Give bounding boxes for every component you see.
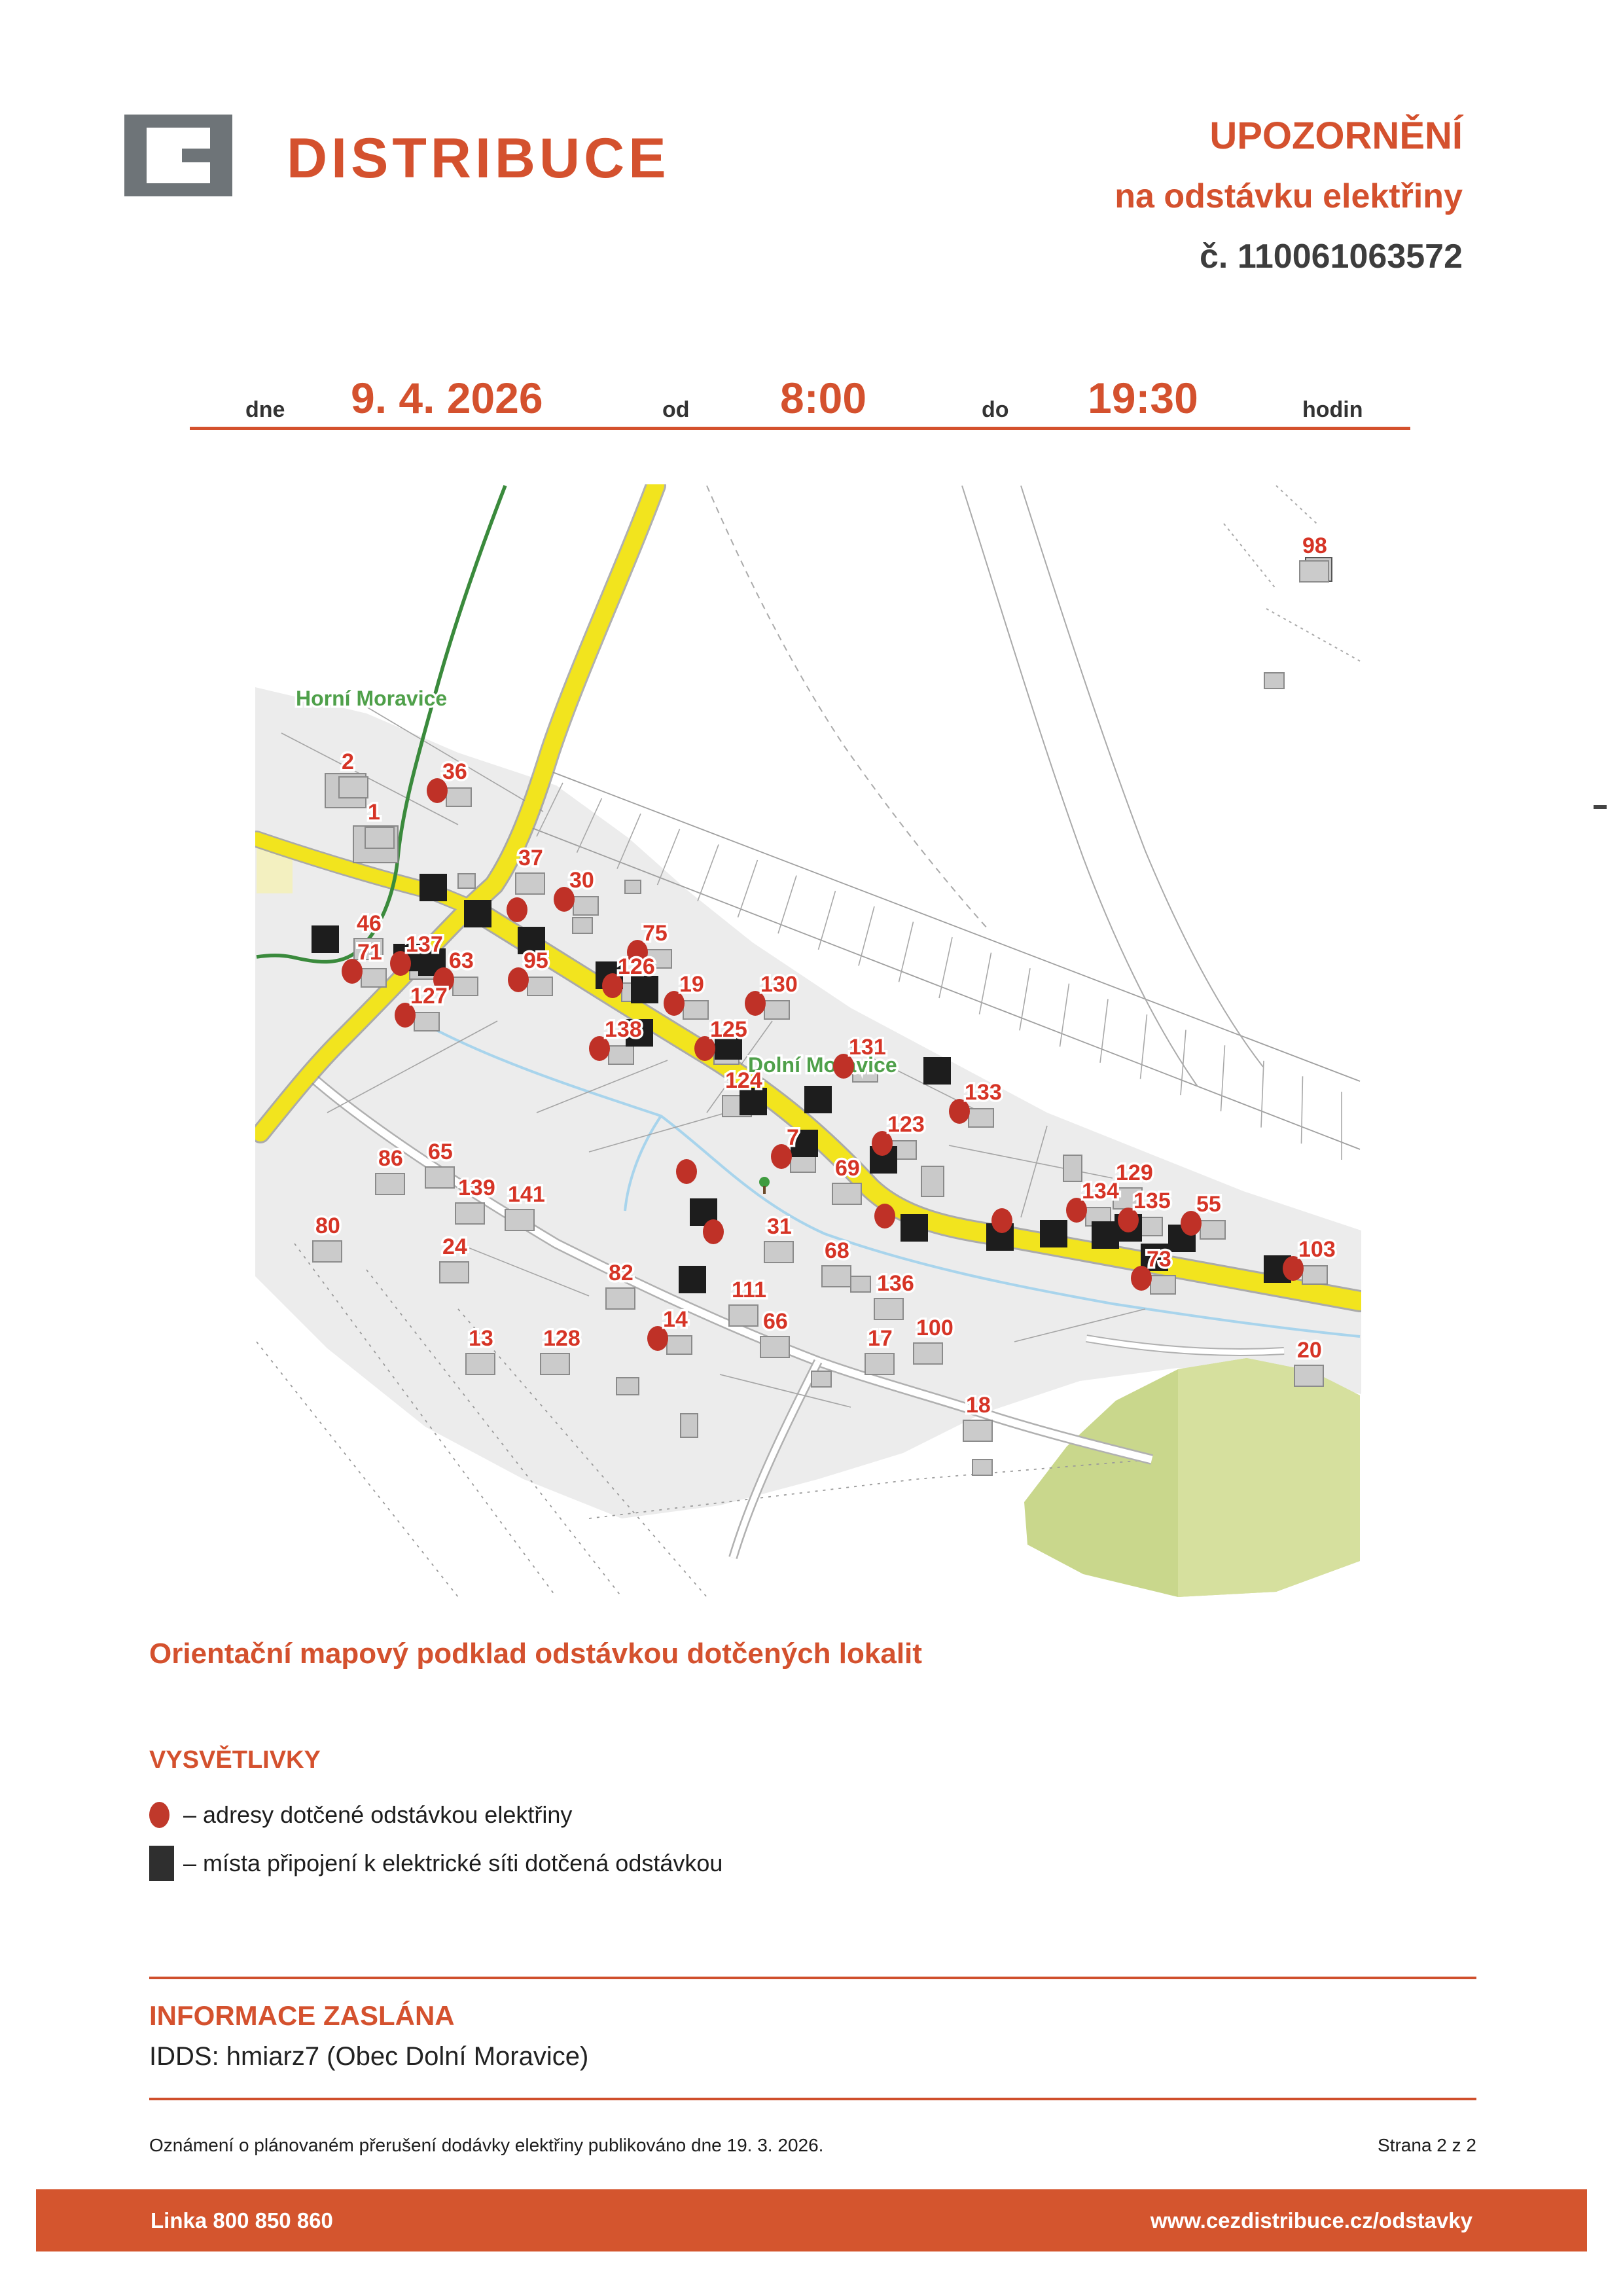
address-number-111: 111 bbox=[732, 1278, 766, 1302]
to-value: 19:30 bbox=[1088, 373, 1198, 423]
address-number-14: 14 bbox=[663, 1307, 688, 1332]
house bbox=[440, 1262, 469, 1283]
hatch-line bbox=[698, 844, 719, 901]
address-number-17: 17 bbox=[868, 1326, 893, 1351]
address-number-135: 135 bbox=[1133, 1189, 1171, 1213]
house bbox=[1200, 1221, 1225, 1239]
house bbox=[865, 1354, 894, 1374]
map-forest-light bbox=[1178, 1358, 1360, 1597]
connection-square bbox=[419, 874, 447, 901]
house bbox=[606, 1288, 635, 1309]
address-number-63: 63 bbox=[449, 948, 474, 973]
hatch-line bbox=[1221, 1045, 1225, 1111]
address-number-69: 69 bbox=[835, 1156, 860, 1181]
house bbox=[874, 1299, 903, 1319]
address-number-37: 37 bbox=[518, 846, 543, 870]
notice-title: UPOZORNĚNÍ bbox=[1115, 106, 1463, 166]
locality-label: Horní Moravice bbox=[296, 687, 447, 710]
scan-artifact bbox=[1594, 805, 1607, 809]
hatch-line bbox=[738, 860, 758, 918]
connection-square bbox=[631, 976, 658, 1003]
map-tree-trunk bbox=[763, 1186, 766, 1194]
red-dot-icon bbox=[149, 1802, 183, 1828]
house bbox=[729, 1305, 758, 1326]
hatch-line bbox=[1302, 1076, 1303, 1143]
outage-schedule: dne 9. 4. 2026 od 8:00 do 19:30 hodin bbox=[0, 361, 1623, 427]
connection-square bbox=[1040, 1220, 1067, 1247]
house bbox=[527, 977, 552, 996]
house bbox=[1302, 1266, 1327, 1284]
address-number-36: 36 bbox=[442, 759, 467, 784]
address-number-127: 127 bbox=[410, 984, 448, 1009]
house bbox=[822, 1266, 851, 1287]
connection-square bbox=[1092, 1221, 1119, 1249]
address-number-130: 130 bbox=[760, 972, 798, 997]
address-number-82: 82 bbox=[609, 1261, 633, 1285]
cez-logo-icon bbox=[124, 115, 232, 196]
notice-subtitle: na odstávku elektřiny bbox=[1115, 166, 1463, 226]
map-caption: Orientační mapový podklad odstávkou dotč… bbox=[149, 1638, 922, 1670]
hatch-line bbox=[778, 876, 796, 934]
house bbox=[609, 1046, 633, 1064]
contact-phone: Linka 800 850 860 bbox=[151, 2208, 333, 2233]
house bbox=[667, 1336, 692, 1354]
house bbox=[313, 1241, 342, 1262]
connection-square bbox=[923, 1057, 951, 1085]
address-number-103: 103 bbox=[1298, 1237, 1336, 1262]
house bbox=[764, 1001, 789, 1019]
address-number-71: 71 bbox=[357, 940, 382, 965]
address-number-30: 30 bbox=[569, 868, 594, 893]
connection-square bbox=[901, 1214, 928, 1242]
address-number-95: 95 bbox=[524, 948, 548, 973]
address-number-19: 19 bbox=[679, 972, 704, 997]
address-number-128: 128 bbox=[543, 1326, 580, 1351]
hatch-line bbox=[1100, 999, 1108, 1062]
house bbox=[963, 1420, 992, 1441]
notice-title-block: UPOZORNĚNÍ na odstávku elektřiny č. 1100… bbox=[1115, 106, 1463, 287]
legend-item-connections: – místa připojení k elektrické síti dotč… bbox=[149, 1843, 722, 1884]
address-number-126: 126 bbox=[618, 954, 655, 979]
address-number-1: 1 bbox=[368, 800, 380, 825]
house bbox=[541, 1354, 569, 1374]
house bbox=[683, 1001, 708, 1019]
address-dot bbox=[991, 1208, 1012, 1233]
hatch-line bbox=[859, 906, 874, 966]
house bbox=[914, 1343, 942, 1364]
house bbox=[453, 977, 478, 996]
address-number-46: 46 bbox=[357, 911, 382, 936]
address-dot bbox=[703, 1219, 724, 1244]
address-number-137: 137 bbox=[406, 932, 443, 957]
house bbox=[414, 1013, 439, 1031]
address-number-55: 55 bbox=[1196, 1192, 1221, 1217]
house bbox=[1300, 561, 1329, 582]
divider-rule bbox=[149, 1977, 1476, 1979]
to-label: do bbox=[982, 397, 1009, 423]
house bbox=[573, 897, 598, 915]
house bbox=[505, 1210, 534, 1230]
address-number-139: 139 bbox=[458, 1175, 495, 1200]
date-label: dne bbox=[245, 397, 285, 423]
house bbox=[365, 827, 394, 848]
from-label: od bbox=[662, 397, 690, 423]
date-value: 9. 4. 2026 bbox=[351, 373, 543, 423]
hatch-line bbox=[1141, 1014, 1147, 1079]
house bbox=[339, 777, 368, 798]
address-number-133: 133 bbox=[965, 1080, 1002, 1105]
footer-bar: Linka 800 850 860 www.cezdistribuce.cz/o… bbox=[36, 2189, 1587, 2251]
hatch-line bbox=[1060, 984, 1069, 1047]
house bbox=[361, 969, 386, 987]
house bbox=[516, 873, 544, 894]
unit-label: hodin bbox=[1302, 397, 1363, 423]
black-square-icon bbox=[149, 1846, 183, 1881]
address-dot bbox=[874, 1204, 895, 1229]
divider-rule bbox=[149, 2098, 1476, 2100]
from-value: 8:00 bbox=[780, 373, 866, 423]
house bbox=[1294, 1365, 1323, 1386]
address-number-13: 13 bbox=[469, 1326, 493, 1351]
address-number-75: 75 bbox=[643, 921, 668, 946]
address-number-125: 125 bbox=[710, 1017, 747, 1042]
address-number-129: 129 bbox=[1116, 1160, 1153, 1185]
address-number-7: 7 bbox=[787, 1125, 799, 1150]
address-number-31: 31 bbox=[767, 1214, 792, 1239]
house bbox=[425, 1167, 454, 1188]
address-number-2: 2 bbox=[342, 749, 354, 774]
page-number: Strana 2 z 2 bbox=[1378, 2135, 1476, 2156]
address-number-65: 65 bbox=[428, 1139, 453, 1164]
house bbox=[969, 1109, 993, 1127]
address-number-18: 18 bbox=[966, 1393, 991, 1418]
house bbox=[832, 1183, 861, 1204]
address-number-124: 124 bbox=[725, 1068, 762, 1093]
address-number-24: 24 bbox=[442, 1234, 467, 1259]
house bbox=[446, 788, 471, 806]
house bbox=[466, 1354, 495, 1374]
address-number-138: 138 bbox=[605, 1017, 642, 1042]
address-number-134: 134 bbox=[1082, 1179, 1119, 1204]
address-dot bbox=[507, 897, 527, 922]
connection-square bbox=[312, 925, 339, 953]
address-number-123: 123 bbox=[887, 1112, 925, 1137]
connection-square bbox=[464, 900, 491, 927]
address-number-98: 98 bbox=[1302, 533, 1327, 558]
hatch-line bbox=[1261, 1061, 1264, 1128]
address-number-66: 66 bbox=[763, 1309, 788, 1334]
address-number-80: 80 bbox=[315, 1213, 340, 1238]
address-number-100: 100 bbox=[916, 1316, 954, 1340]
map-canvas: Horní MoraviceDolní Moravice 98213746124… bbox=[255, 484, 1361, 1600]
connection-square bbox=[804, 1086, 832, 1113]
brand-wordmark: DISTRIBUCE bbox=[287, 119, 670, 198]
address-number-20: 20 bbox=[1297, 1338, 1322, 1363]
address-number-86: 86 bbox=[378, 1146, 403, 1171]
legend-title: VYSVĚTLIVKY bbox=[149, 1746, 321, 1774]
house bbox=[455, 1203, 484, 1224]
legend-item-addresses: – adresy dotčené odstávkou elektřiny bbox=[149, 1795, 572, 1835]
outage-map: Horní MoraviceDolní Moravice 98213746124… bbox=[255, 484, 1361, 1600]
document-page: DISTRIBUCE UPOZORNĚNÍ na odstávku elektř… bbox=[0, 0, 1623, 2296]
address-number-141: 141 bbox=[508, 1182, 545, 1207]
legend-item-text: – místa připojení k elektrické síti dotč… bbox=[183, 1850, 722, 1877]
house bbox=[376, 1174, 404, 1194]
connection-square bbox=[679, 1266, 706, 1293]
info-sent-title: INFORMACE ZASLÁNA bbox=[149, 2000, 455, 2032]
notice-number: č. 110061063572 bbox=[1115, 226, 1463, 287]
hatch-line bbox=[819, 891, 836, 950]
address-number-136: 136 bbox=[877, 1271, 914, 1296]
house bbox=[1150, 1276, 1175, 1294]
map-tree-icon bbox=[759, 1177, 770, 1187]
schedule-underline bbox=[190, 427, 1410, 430]
address-number-131: 131 bbox=[849, 1035, 886, 1060]
address-number-73: 73 bbox=[1147, 1247, 1171, 1272]
info-idds: IDDS: hmiarz7 (Obec Dolní Moravice) bbox=[149, 2042, 588, 2072]
address-number-68: 68 bbox=[825, 1238, 849, 1263]
house bbox=[760, 1336, 789, 1357]
address-dot bbox=[676, 1159, 697, 1184]
outages-url: www.cezdistribuce.cz/odstavky bbox=[1150, 2208, 1472, 2233]
house bbox=[764, 1242, 793, 1263]
publication-note: Oznámení o plánovaném přerušení dodávky … bbox=[149, 2135, 823, 2156]
legend-item-text: – adresy dotčené odstávkou elektřiny bbox=[183, 1801, 572, 1829]
